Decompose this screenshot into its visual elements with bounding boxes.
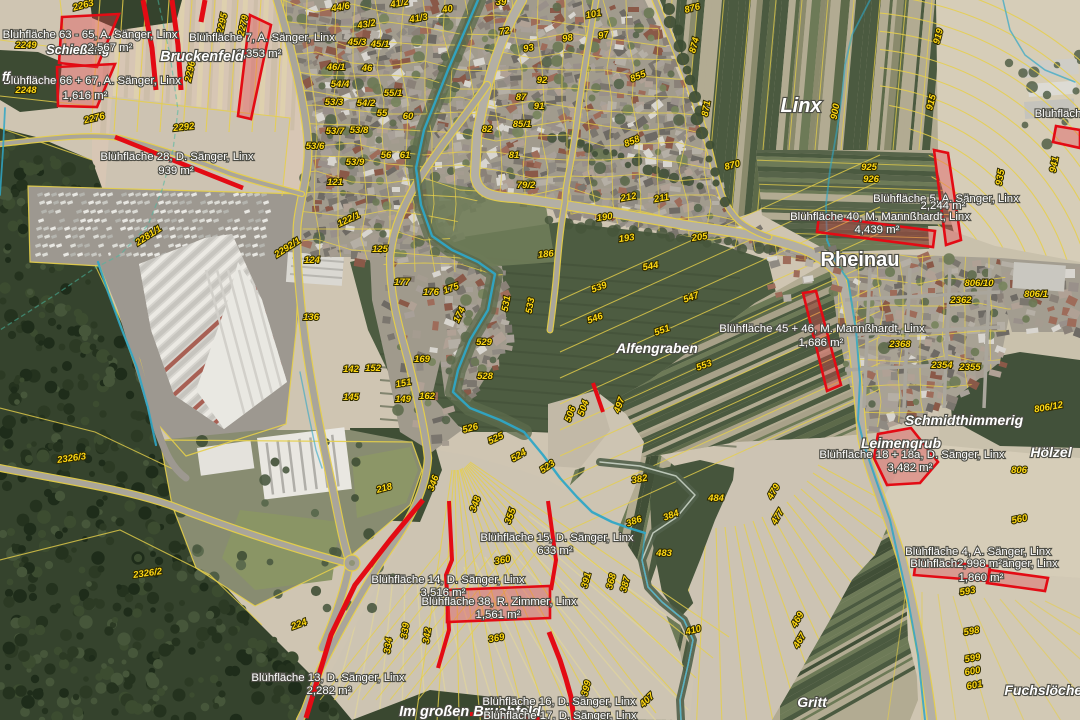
svg-text:177: 177 <box>394 277 411 288</box>
svg-text:Blühfläch2,998 m²änger, Linx: Blühfläch2,998 m²änger, Linx <box>910 558 1058 570</box>
svg-text:53/6: 53/6 <box>306 141 325 152</box>
svg-text:2,567 m²: 2,567 m² <box>88 42 133 54</box>
svg-text:Rheinau: Rheinau <box>821 249 900 271</box>
svg-text:342: 342 <box>421 626 434 644</box>
svg-text:529: 529 <box>476 337 493 348</box>
svg-text:46/1: 46/1 <box>326 62 346 73</box>
svg-text:193: 193 <box>618 232 636 245</box>
svg-text:633 m²: 633 m² <box>537 545 573 557</box>
svg-text:125: 125 <box>372 244 389 255</box>
svg-text:Blühfläche 17, D. Sänger, Linx: Blühfläche 17, D. Sänger, Linx <box>483 710 637 720</box>
svg-text:124: 124 <box>304 255 321 266</box>
svg-text:Hölzel: Hölzel <box>1030 444 1072 460</box>
svg-text:Schmidthimmerig: Schmidthimmerig <box>905 412 1024 428</box>
svg-text:Blühfläche 4, A. Sänger, Linx: Blühfläche 4, A. Sänger, Linx <box>905 546 1051 558</box>
svg-text:528: 528 <box>477 371 494 382</box>
svg-text:2355: 2355 <box>958 362 981 373</box>
svg-text:Blühfläche 14, D. Sänger, Linx: Blühfläche 14, D. Sänger, Linx <box>371 574 525 586</box>
svg-text:53/8: 53/8 <box>350 125 369 136</box>
svg-text:136: 136 <box>303 312 320 323</box>
svg-text:145: 145 <box>343 392 360 403</box>
svg-text:926: 926 <box>863 174 880 185</box>
svg-text:Linx: Linx <box>780 95 822 117</box>
svg-text:Blühfläche 13, D. Sänger, Linx: Blühfläche 13, D. Sänger, Linx <box>251 672 405 684</box>
svg-text:Blühfläche 45 + 46, M. Mannßha: Blühfläche 45 + 46, M. Mannßhardt, Linx <box>719 323 925 335</box>
svg-text:152: 152 <box>365 363 382 374</box>
svg-text:55: 55 <box>377 108 388 119</box>
svg-text:Blühfläche 18 + 18a, D. Sänger: Blühfläche 18 + 18a, D. Sänger, Linx <box>819 449 1005 461</box>
svg-text:45/1: 45/1 <box>370 39 390 50</box>
svg-text:2368: 2368 <box>888 339 911 350</box>
svg-text:85/1: 85/1 <box>513 119 532 130</box>
svg-text:79/2: 79/2 <box>517 180 536 191</box>
svg-text:55/1: 55/1 <box>384 88 403 99</box>
svg-text:54/4: 54/4 <box>331 79 350 90</box>
svg-text:Blühfläche 15, D. Sänger, Linx: Blühfläche 15, D. Sänger, Linx <box>480 532 634 544</box>
svg-text:56: 56 <box>381 150 392 161</box>
svg-text:806/10: 806/10 <box>964 278 994 289</box>
svg-text:54/2: 54/2 <box>357 98 376 109</box>
svg-text:Blühfläch: Blühfläch <box>1035 108 1080 120</box>
svg-text:92: 92 <box>537 75 548 86</box>
svg-text:Blühfläche 40, M. Mannßhardt,: Blühfläche 40, M. Mannßhardt, Linx <box>790 211 970 223</box>
svg-text:339: 339 <box>399 621 412 639</box>
svg-text:2,282 m²: 2,282 m² <box>307 685 352 697</box>
svg-text:Blühfläche 63 - 65, A. Sänger,: Blühfläche 63 - 65, A. Sänger, Linx <box>3 29 178 41</box>
svg-text:2362: 2362 <box>949 295 972 306</box>
svg-text:2249: 2249 <box>14 40 37 51</box>
svg-text:1,616 m²: 1,616 m² <box>63 90 108 102</box>
svg-text:Alfengraben: Alfengraben <box>615 340 698 356</box>
svg-text:939 m²: 939 m² <box>158 165 194 177</box>
svg-text:484: 484 <box>707 493 725 504</box>
svg-text:334: 334 <box>382 636 395 654</box>
svg-text:Gritt: Gritt <box>797 694 828 710</box>
svg-text:Blühfläche 7, A. Sänger, Linx: Blühfläche 7, A. Sänger, Linx <box>189 32 335 44</box>
svg-text:121: 121 <box>327 177 343 188</box>
svg-text:Blühfläche 38, R. Zimmer, Linx: Blühfläche 38, R. Zimmer, Linx <box>421 596 576 608</box>
svg-text:46: 46 <box>361 63 373 74</box>
svg-text:1,686 m²: 1,686 m² <box>799 337 844 349</box>
svg-text:925: 925 <box>861 162 878 173</box>
svg-text:39: 39 <box>496 0 507 8</box>
svg-text:53/7: 53/7 <box>326 126 345 137</box>
svg-text:149: 149 <box>395 394 412 405</box>
svg-text:4,439 m²: 4,439 m² <box>855 224 900 236</box>
svg-text:162: 162 <box>419 391 436 402</box>
svg-text:483: 483 <box>655 548 673 559</box>
svg-text:2354: 2354 <box>930 360 953 371</box>
svg-text:61: 61 <box>400 150 411 161</box>
svg-text:Blühfläche 28, D. Sänger, Linx: Blühfläche 28, D. Sänger, Linx <box>100 151 254 163</box>
svg-text:81: 81 <box>509 150 520 161</box>
svg-text:806/1: 806/1 <box>1024 289 1048 300</box>
svg-text:Fuchslöcher: Fuchslöcher <box>1004 682 1080 698</box>
svg-text:176: 176 <box>423 287 440 298</box>
svg-text:Blühfläche 16, D. Sänger, Linx: Blühfläche 16, D. Sänger, Linx <box>482 696 636 708</box>
svg-text:53/3: 53/3 <box>325 97 344 108</box>
svg-text:53/9: 53/9 <box>346 157 365 168</box>
svg-text:87: 87 <box>516 92 527 103</box>
svg-text:3,482 m²: 3,482 m² <box>888 462 933 474</box>
svg-text:1,860 m²: 1,860 m² <box>959 572 1004 584</box>
svg-text:806: 806 <box>1011 465 1028 476</box>
svg-text:45/3: 45/3 <box>347 37 367 48</box>
svg-text:Bruckenfeld: Bruckenfeld <box>160 49 245 65</box>
svg-text:142: 142 <box>343 364 360 375</box>
svg-text:60: 60 <box>403 111 414 122</box>
svg-text:Blühfläche 66 + 67, A. Sänger,: Blühfläche 66 + 67, A. Sänger, Linx <box>3 75 181 87</box>
svg-text:190: 190 <box>596 211 614 224</box>
svg-text:186: 186 <box>537 248 554 260</box>
svg-text:82: 82 <box>482 124 493 135</box>
svg-text:169: 169 <box>414 354 431 365</box>
svg-text:1,561 m²: 1,561 m² <box>476 609 521 621</box>
svg-text:91: 91 <box>534 101 545 112</box>
